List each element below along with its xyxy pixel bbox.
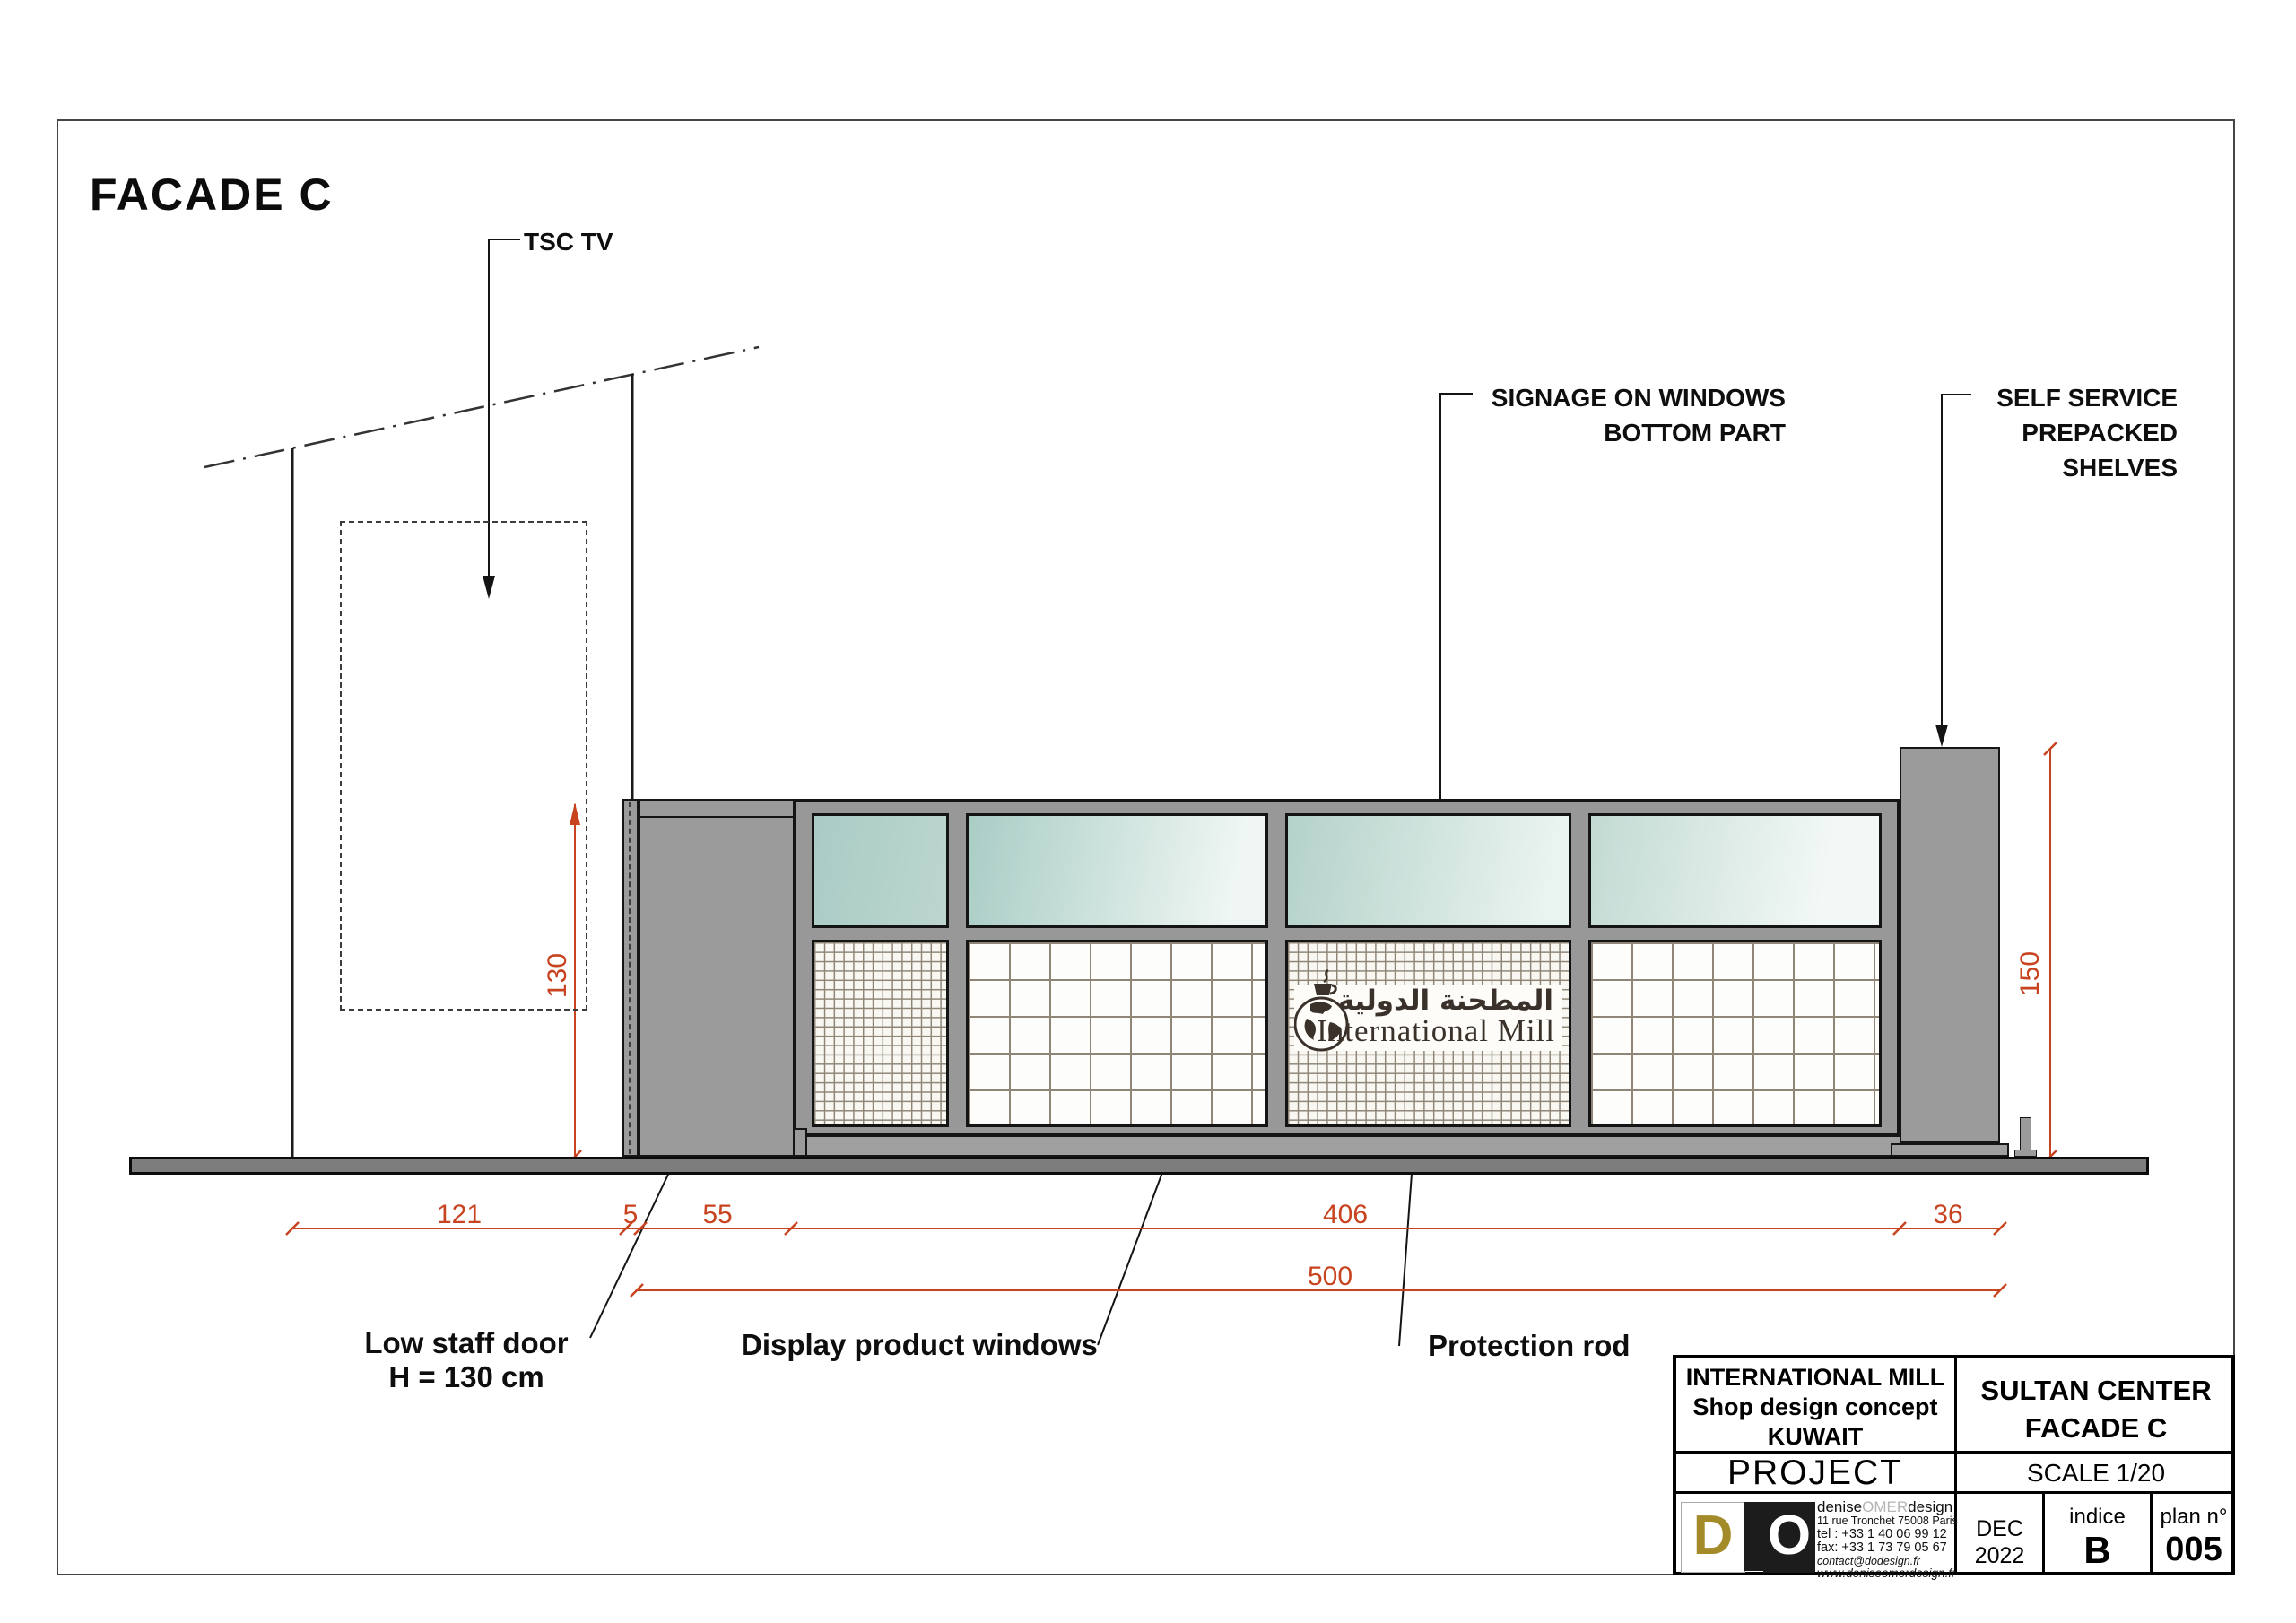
client-line2: Shop design concept <box>1676 1393 1954 1421</box>
low-staff-door <box>639 799 795 1157</box>
indice-value: B <box>2045 1529 2150 1572</box>
designer-logo-o: O <box>1763 1502 1815 1573</box>
facade-c-drawing-sheet: FACADE C <box>0 0 2296 1623</box>
floor-slab <box>129 1157 2149 1175</box>
door-top-rail <box>640 801 793 818</box>
low-door-label-line1: Low staff door <box>296 1327 637 1359</box>
shelves-arrowhead-icon <box>1935 725 1948 747</box>
door-side-frame <box>622 799 639 1157</box>
display-window-4 <box>1588 940 1882 1127</box>
storefront-frame <box>793 799 1900 1135</box>
protection-rod-label: Protection rod <box>1428 1330 1631 1362</box>
tsc-tv-dashed-zone <box>340 521 587 1011</box>
date-year: 2022 <box>1957 1543 2042 1569</box>
dim-36: 36 <box>1933 1200 1962 1230</box>
dim-150: 150 <box>2015 951 2046 996</box>
indice-label: indice <box>2045 1505 2150 1530</box>
signage-label-line1: SIGNAGE ON WINDOWS <box>1472 380 1786 415</box>
self-service-shelf-block <box>1900 747 2000 1143</box>
cup-icon <box>1314 984 1332 995</box>
transom-glass-3 <box>1285 813 1571 928</box>
display-window-2 <box>966 940 1268 1127</box>
date-month: DEC <box>1957 1516 2042 1542</box>
plan-number-label: plan n° <box>2152 1505 2235 1530</box>
transom-glass-4 <box>1588 813 1882 928</box>
designer-email: contact@dodesign.fr <box>1817 1555 1961 1567</box>
designer-name: deniseOMERdesign <box>1817 1499 1961 1515</box>
designer-address: 11 rue Tronchet 75008 Paris <box>1817 1515 1961 1528</box>
shelf-base <box>1891 1143 2009 1157</box>
designer-tel: tel : +33 1 40 06 99 12 <box>1817 1528 1961 1541</box>
tsc-tv-label: TSC TV <box>524 224 613 259</box>
title-block: INTERNATIONAL MILL Shop design concept K… <box>1673 1355 2235 1575</box>
dim-55: 55 <box>702 1200 732 1230</box>
dim-406: 406 <box>1323 1200 1368 1230</box>
low-door-label-line2: H = 130 cm <box>296 1361 637 1393</box>
client-line3: KUWAIT <box>1676 1423 1954 1451</box>
designer-logo-d: D <box>1681 1502 1745 1573</box>
ceiling-dashdot-line <box>204 347 759 467</box>
dim-500: 500 <box>1308 1262 1352 1292</box>
dim-121: 121 <box>437 1200 482 1230</box>
window-signage-band: المطحنة الدولية International Mill <box>1294 985 1562 1051</box>
project-label: PROJECT <box>1676 1454 1954 1493</box>
designer-fax: fax: +33 1 73 79 05 67 <box>1817 1541 1961 1555</box>
dim-5: 5 <box>623 1200 639 1230</box>
dim-130: 130 <box>543 953 573 998</box>
plan-number-value: 005 <box>2152 1531 2235 1569</box>
display-window-1 <box>812 940 949 1127</box>
signage-label-line2: BOTTOM PART <box>1472 415 1786 450</box>
steam-icon <box>1324 970 1328 982</box>
protection-rod-bar <box>805 1135 1910 1157</box>
shelves-label-line2: PREPACKED <box>1909 415 2178 450</box>
shelves-label-line1: SELF SERVICE <box>1909 380 2178 415</box>
shop-logo-latin: International Mill <box>1317 1013 1555 1049</box>
client-line1: INTERNATIONAL MILL <box>1676 1364 1954 1392</box>
shelves-label-line3: SHELVES <box>1909 450 2178 485</box>
small-post-foot <box>2014 1150 2037 1157</box>
scale-label: SCALE 1/20 <box>1957 1459 2235 1488</box>
display-windows-label: Display product windows <box>741 1329 1098 1361</box>
protection-rod-leader <box>1399 1161 1413 1346</box>
designer-website: www.deniseomerdesign.fr <box>1817 1567 1961 1580</box>
sheet-title-line2: FACADE C <box>1957 1412 2235 1445</box>
shop-logo-arabic: المطحنة الدولية <box>1338 985 1553 1017</box>
sheet-title-line1: SULTAN CENTER <box>1957 1375 2235 1407</box>
transom-glass-1 <box>812 813 949 928</box>
designer-logo-strip: denise omer design <box>1744 1502 1763 1571</box>
designer-contact-block: deniseOMERdesign 11 rue Tronchet 75008 P… <box>1817 1499 1961 1580</box>
transom-glass-2 <box>966 813 1268 928</box>
door-frame-dashed-line <box>629 802 631 1154</box>
